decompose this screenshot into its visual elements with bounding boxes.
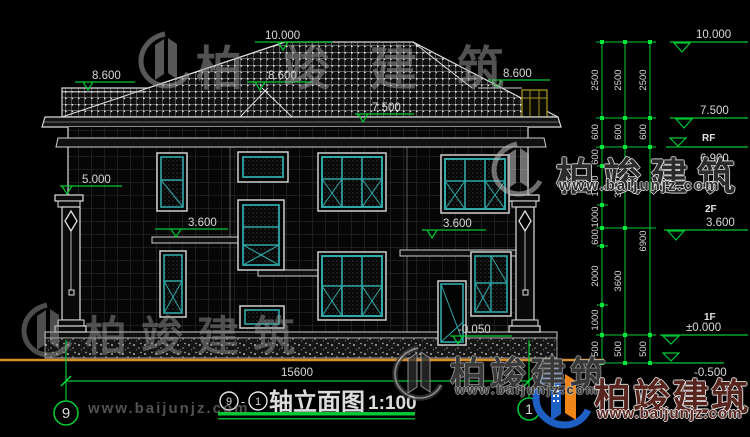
svg-text:2500: 2500 [638,69,649,90]
chain2-labels: 2500 600 3300 3600 500 [613,69,624,357]
svg-text:2000: 2000 [590,265,601,286]
svg-text:2500: 2500 [613,69,624,90]
axis-bubble-1-label: 1 [525,401,533,417]
svg-text:6900: 6900 [638,230,649,251]
level-column-top: 5.000 [82,174,111,186]
svg-text:2500: 2500 [590,69,601,90]
canopy-left [152,237,252,243]
svg-text:500: 500 [638,341,649,357]
watermark-url-left: www.baijunjz.com [88,400,249,417]
window-left-2f [157,153,187,211]
svg-text:3600: 3600 [613,270,624,291]
right-level-marks: 10.000 7.500 RF 6.900 2F 3.600 1F ±0.000… [656,29,748,379]
svg-text:1000: 1000 [590,206,601,227]
mark-3600: 3.600 [706,217,735,229]
level-floor2-right: 3.600 [443,218,472,230]
watermark-brand-top: 柏竣建筑 [196,30,544,99]
watermark-brand-left: 柏竣建筑 [85,303,309,364]
watermark-url-bottom-center: www.baijunjz.com [455,382,599,397]
mark-rf: RF [702,133,715,144]
mark-2f: 2F [705,204,717,215]
window-big-2f-center [318,153,386,211]
mark-0000: ±0.000 [686,322,721,334]
level-floor2-left: 3.600 [188,217,217,229]
svg-text:600: 600 [613,124,624,140]
svg-text:500: 500 [613,341,624,357]
elevation-drawing-canvas: 10.000 8.600 8.600 8.600 7.500 5.000 3.6… [0,0,750,437]
level-entry: -0.050 [458,324,491,336]
total-width-dim: 15600 [281,367,313,379]
watermark-url-right: www.baijunjz.com [559,177,720,194]
mark-7500: 7.500 [700,105,729,117]
window-vent-2f [238,152,288,182]
title-axis-right: 1 [255,396,261,408]
watermark-url-bottom-right: www.baijunjz.com [597,405,742,422]
title-text: 轴立面图 [269,388,365,416]
window-1f-right [471,252,511,316]
mark-10000: 10.000 [696,29,731,41]
level-eave-left: 8.600 [92,70,121,82]
eave-fascia [42,117,561,127]
window-big-1f [318,252,386,320]
chain3-labels: 2500 600 6900 500 [638,69,649,357]
svg-text:1000: 1000 [590,309,601,330]
window-tall-2f [238,200,284,270]
chain1-labels: 2500 600 600 1700 1000 600 2000 1000 500 [590,69,601,357]
svg-text:600: 600 [638,124,649,140]
axis-bubble-9-label: 9 [62,405,70,422]
svg-text:600: 600 [590,124,601,140]
level-roof-low: 7.500 [372,102,401,114]
svg-text:600: 600 [590,229,601,245]
